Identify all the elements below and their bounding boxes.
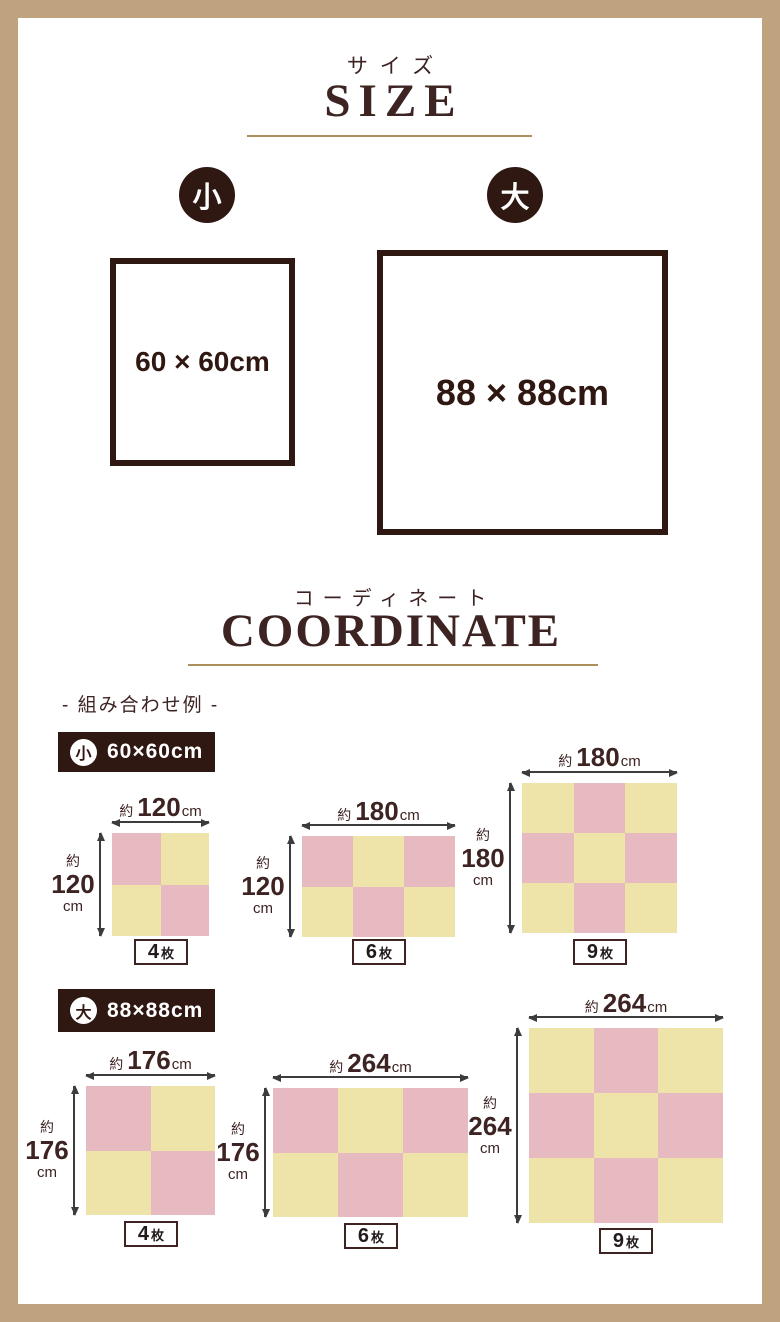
approx-prefix: 約 bbox=[241, 855, 285, 872]
mat-checkerboard-grid bbox=[86, 1086, 215, 1215]
mat-cell-yellow bbox=[151, 1086, 216, 1151]
width-arrow bbox=[529, 1016, 723, 1018]
group-badge-large: 大 88×88cm bbox=[58, 989, 215, 1032]
height-arrow bbox=[289, 836, 291, 937]
mat-cell-yellow bbox=[529, 1158, 594, 1223]
height-unit: cm bbox=[468, 1140, 512, 1157]
height-value: 180 bbox=[461, 844, 505, 872]
height-dimension-label: 約176cm bbox=[216, 1121, 260, 1183]
mat-cell-pink bbox=[353, 887, 404, 938]
mat-cell-pink bbox=[161, 885, 210, 937]
count-unit: 枚 bbox=[379, 943, 392, 962]
mat-cell-pink bbox=[658, 1093, 723, 1158]
count-value: 4 bbox=[138, 1223, 149, 1246]
height-value: 120 bbox=[241, 872, 285, 900]
width-value: 180 bbox=[576, 742, 619, 772]
count-unit: 枚 bbox=[626, 1232, 639, 1251]
group-badge-small: 小 60×60cm bbox=[58, 732, 215, 772]
width-value: 176 bbox=[127, 1045, 170, 1075]
coordinate-title-en: COORDINATE bbox=[0, 604, 780, 658]
mat-cell-yellow bbox=[625, 783, 677, 833]
mat-cell-pink bbox=[151, 1151, 216, 1216]
height-dimension-label: 約120cm bbox=[241, 855, 285, 917]
mat-cell-yellow bbox=[404, 887, 455, 938]
approx-prefix: 約 bbox=[468, 1095, 512, 1112]
group-small-size-label: 60×60cm bbox=[107, 740, 203, 764]
mat-count-box: 9枚 bbox=[573, 939, 627, 965]
height-arrow bbox=[516, 1028, 518, 1223]
mat-cell-yellow bbox=[529, 1028, 594, 1093]
width-value: 120 bbox=[137, 792, 180, 822]
mat-cell-pink bbox=[625, 833, 677, 883]
width-arrow bbox=[302, 824, 455, 826]
approx-prefix: 約 bbox=[51, 853, 95, 870]
mat-cell-pink bbox=[574, 783, 626, 833]
product-size-infographic: サイズ SIZE 小 大 60 × 60cm 88 × 88cm コーディネート… bbox=[0, 0, 780, 1322]
width-unit: cm bbox=[621, 753, 641, 770]
mat-cell-yellow bbox=[658, 1028, 723, 1093]
mat-cell-pink bbox=[403, 1088, 468, 1153]
mat-cell-pink bbox=[338, 1153, 403, 1218]
mat-cell-pink bbox=[594, 1158, 659, 1223]
height-dimension-label: 約180cm bbox=[461, 827, 505, 889]
mat-count-box: 9枚 bbox=[599, 1228, 653, 1254]
mat-cell-pink bbox=[522, 833, 574, 883]
mat-cell-yellow bbox=[353, 836, 404, 887]
width-arrow bbox=[86, 1074, 215, 1076]
height-dimension-label: 約176cm bbox=[25, 1119, 69, 1181]
width-dimension-label: 約180cm bbox=[502, 742, 697, 773]
mat-cell-yellow bbox=[574, 833, 626, 883]
height-value: 176 bbox=[25, 1136, 69, 1164]
small-size-square: 60 × 60cm bbox=[110, 258, 295, 466]
count-unit: 枚 bbox=[161, 943, 174, 962]
width-dimension-label: 約264cm bbox=[509, 988, 743, 1019]
count-value: 9 bbox=[613, 1230, 624, 1253]
mat-cell-yellow bbox=[594, 1093, 659, 1158]
height-unit: cm bbox=[216, 1166, 260, 1183]
mat-cell-yellow bbox=[302, 887, 353, 938]
count-unit: 枚 bbox=[600, 943, 613, 962]
count-value: 6 bbox=[366, 941, 377, 964]
combination-example-subtitle: - 組み合わせ例 - bbox=[62, 690, 219, 717]
mat-cell-pink bbox=[594, 1028, 659, 1093]
mat-cell-yellow bbox=[161, 833, 210, 885]
mat-cell-yellow bbox=[86, 1151, 151, 1216]
large-size-dimension: 88 × 88cm bbox=[436, 372, 609, 414]
approx-prefix: 約 bbox=[329, 1059, 343, 1075]
width-unit: cm bbox=[400, 807, 420, 824]
width-value: 180 bbox=[355, 796, 398, 826]
large-size-circle-badge: 大 bbox=[487, 167, 543, 223]
approx-prefix: 約 bbox=[119, 803, 133, 819]
mat-cell-yellow bbox=[403, 1153, 468, 1218]
size-title-en: SIZE bbox=[0, 74, 780, 128]
mat-checkerboard-grid bbox=[112, 833, 209, 936]
mat-cell-yellow bbox=[112, 885, 161, 937]
height-unit: cm bbox=[51, 898, 95, 915]
mat-checkerboard-grid bbox=[522, 783, 677, 933]
mat-cell-pink bbox=[574, 883, 626, 933]
approx-prefix: 約 bbox=[25, 1119, 69, 1136]
approx-prefix: 約 bbox=[109, 1056, 123, 1072]
mat-cell-pink bbox=[404, 836, 455, 887]
height-arrow bbox=[264, 1088, 266, 1217]
small-kanji-circle: 小 bbox=[70, 739, 97, 766]
mat-count-box: 6枚 bbox=[344, 1223, 398, 1249]
height-value: 120 bbox=[51, 870, 95, 898]
height-arrow bbox=[73, 1086, 75, 1215]
height-unit: cm bbox=[461, 872, 505, 889]
mat-cell-pink bbox=[86, 1086, 151, 1151]
height-value: 264 bbox=[468, 1112, 512, 1140]
mat-cell-yellow bbox=[522, 883, 574, 933]
mat-cell-pink bbox=[273, 1088, 338, 1153]
height-unit: cm bbox=[25, 1164, 69, 1181]
width-arrow bbox=[273, 1076, 468, 1078]
height-dimension-label: 約264cm bbox=[468, 1095, 512, 1157]
count-unit: 枚 bbox=[371, 1227, 384, 1246]
small-size-dimension: 60 × 60cm bbox=[135, 346, 270, 378]
mat-cell-yellow bbox=[658, 1158, 723, 1223]
height-arrow bbox=[509, 783, 511, 933]
mat-checkerboard-grid bbox=[273, 1088, 468, 1217]
coordinate-title-underline bbox=[188, 664, 598, 666]
mat-checkerboard-grid bbox=[302, 836, 455, 937]
approx-prefix: 約 bbox=[337, 807, 351, 823]
width-arrow bbox=[112, 821, 209, 823]
mat-count-box: 4枚 bbox=[134, 939, 188, 965]
approx-prefix: 約 bbox=[585, 999, 599, 1015]
large-size-square: 88 × 88cm bbox=[377, 250, 668, 535]
approx-prefix: 約 bbox=[461, 827, 505, 844]
width-value: 264 bbox=[347, 1048, 390, 1078]
count-value: 6 bbox=[358, 1225, 369, 1248]
count-value: 4 bbox=[148, 941, 159, 964]
width-dimension-label: 約264cm bbox=[253, 1048, 488, 1079]
approx-prefix: 約 bbox=[558, 753, 572, 769]
large-kanji-circle: 大 bbox=[70, 997, 97, 1024]
count-value: 9 bbox=[587, 941, 598, 964]
mat-cell-yellow bbox=[273, 1153, 338, 1218]
width-unit: cm bbox=[172, 1056, 192, 1073]
count-unit: 枚 bbox=[151, 1225, 164, 1244]
width-unit: cm bbox=[392, 1059, 412, 1076]
height-value: 176 bbox=[216, 1138, 260, 1166]
mat-cell-pink bbox=[112, 833, 161, 885]
height-unit: cm bbox=[241, 900, 285, 917]
width-unit: cm bbox=[182, 803, 202, 820]
height-arrow bbox=[99, 833, 101, 936]
mat-checkerboard-grid bbox=[529, 1028, 723, 1223]
size-title-underline bbox=[247, 135, 532, 137]
width-unit: cm bbox=[647, 999, 667, 1016]
mat-cell-yellow bbox=[522, 783, 574, 833]
mat-count-box: 4枚 bbox=[124, 1221, 178, 1247]
width-value: 264 bbox=[603, 988, 646, 1018]
mat-cell-yellow bbox=[625, 883, 677, 933]
mat-cell-yellow bbox=[338, 1088, 403, 1153]
width-arrow bbox=[522, 771, 677, 773]
height-dimension-label: 約120cm bbox=[51, 853, 95, 915]
approx-prefix: 約 bbox=[216, 1121, 260, 1138]
small-size-circle-badge: 小 bbox=[179, 167, 235, 223]
mat-count-box: 6枚 bbox=[352, 939, 406, 965]
mat-cell-pink bbox=[529, 1093, 594, 1158]
mat-cell-pink bbox=[302, 836, 353, 887]
group-large-size-label: 88×88cm bbox=[107, 999, 203, 1023]
